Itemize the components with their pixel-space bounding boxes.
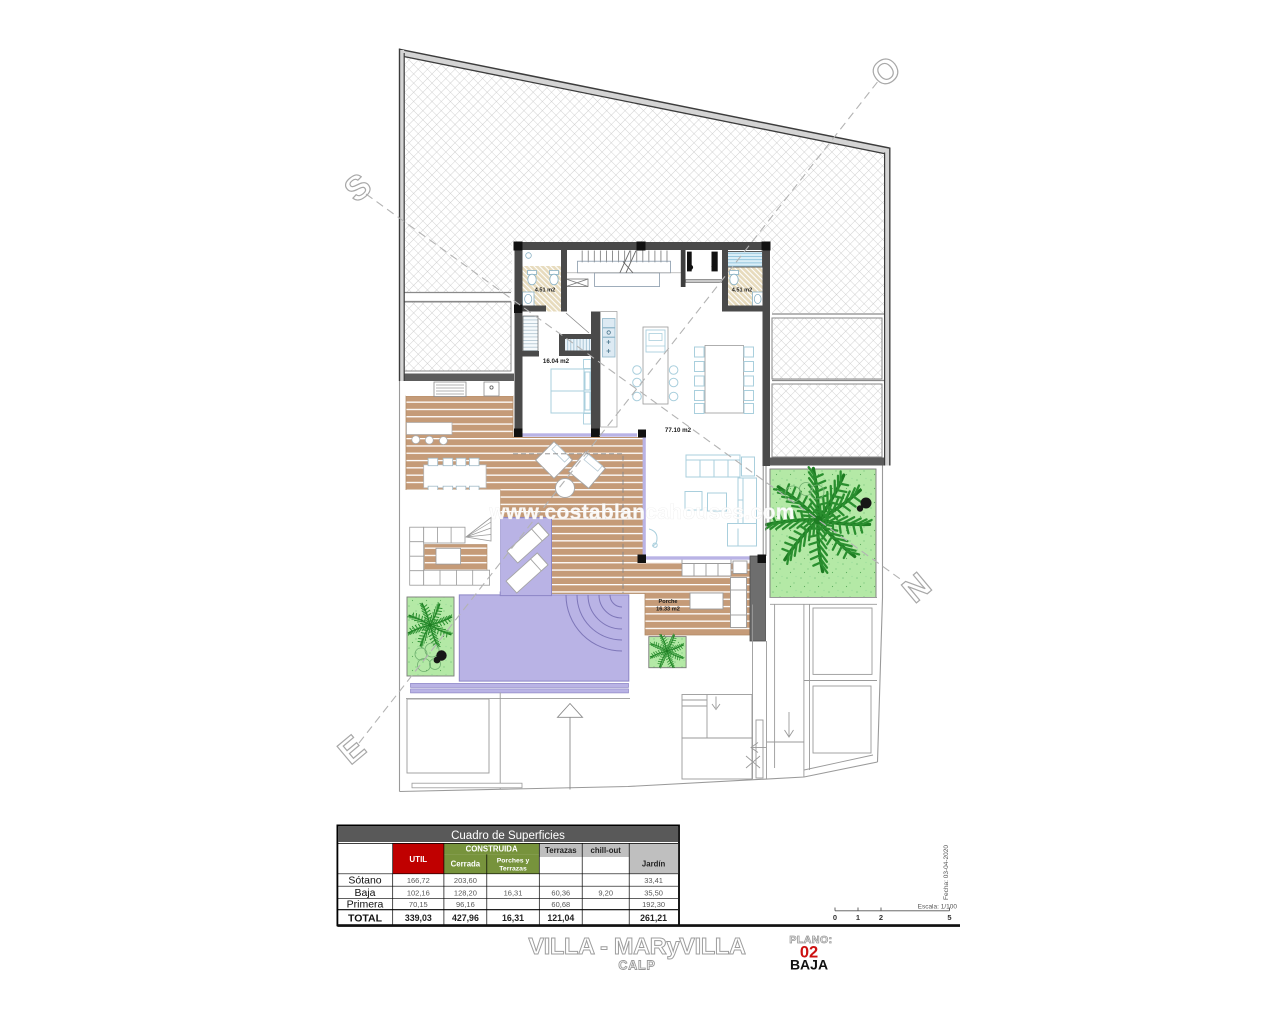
svg-text:1: 1 [856, 913, 860, 922]
svg-text:9,20: 9,20 [598, 888, 613, 897]
svg-text:121,04: 121,04 [547, 913, 574, 923]
svg-text:128,20: 128,20 [454, 888, 477, 897]
svg-text:CALP: CALP [618, 959, 655, 973]
svg-text:Primera: Primera [347, 899, 384, 911]
svg-text:Escala: 1/100: Escala: 1/100 [918, 903, 958, 910]
svg-text:16,31: 16,31 [504, 888, 523, 897]
svg-text:Cerrada: Cerrada [451, 860, 481, 869]
svg-text:35,50: 35,50 [644, 888, 663, 897]
svg-text:5: 5 [947, 913, 951, 922]
svg-text:77.10 m2: 77.10 m2 [665, 427, 692, 434]
svg-text:VILLA - MARyVILLA: VILLA - MARyVILLA [528, 933, 746, 959]
svg-text:TOTAL: TOTAL [348, 913, 383, 925]
svg-text:102,16: 102,16 [407, 888, 430, 897]
svg-text:Terrazas: Terrazas [545, 846, 577, 855]
svg-text:UTIL: UTIL [409, 855, 427, 864]
svg-text:2: 2 [879, 913, 883, 922]
svg-text:4.51 m2: 4.51 m2 [535, 288, 556, 294]
svg-text:16,31: 16,31 [502, 913, 524, 923]
svg-text:192,30: 192,30 [642, 900, 665, 909]
svg-text:427,96: 427,96 [452, 913, 479, 923]
svg-text:chill-out: chill-out [591, 846, 622, 855]
svg-text:0: 0 [833, 913, 837, 922]
svg-text:Sótano: Sótano [348, 875, 381, 887]
svg-text:70,15: 70,15 [409, 900, 428, 909]
svg-text:96,16: 96,16 [456, 900, 475, 909]
svg-text:16.33 m2: 16.33 m2 [656, 607, 680, 613]
svg-text:CONSTRUIDA: CONSTRUIDA [466, 845, 518, 854]
svg-text:4.51 m2: 4.51 m2 [732, 288, 753, 294]
svg-text:Porches y: Porches y [497, 858, 530, 865]
svg-text:261,21: 261,21 [640, 913, 667, 923]
svg-text:Baja: Baja [354, 887, 375, 899]
svg-text:Cuadro de Superficies: Cuadro de Superficies [451, 830, 565, 842]
svg-text:339,03: 339,03 [405, 913, 432, 923]
svg-text:203,60: 203,60 [454, 876, 477, 885]
svg-text:Terrazas: Terrazas [499, 866, 527, 873]
svg-text:Fecha: 03-04-2020: Fecha: 03-04-2020 [943, 845, 950, 900]
svg-text:16.04 m2: 16.04 m2 [543, 358, 570, 365]
svg-text:33,41: 33,41 [644, 876, 663, 885]
svg-text:BAJA: BAJA [790, 957, 828, 973]
svg-text:Jardín: Jardín [642, 860, 666, 869]
svg-text:60,36: 60,36 [551, 888, 570, 897]
svg-text:60,68: 60,68 [551, 900, 570, 909]
svg-text:Porche: Porche [659, 599, 678, 605]
svg-text:www.costablancahouses.com: www.costablancahouses.com [488, 501, 794, 524]
svg-text:166,72: 166,72 [407, 876, 430, 885]
